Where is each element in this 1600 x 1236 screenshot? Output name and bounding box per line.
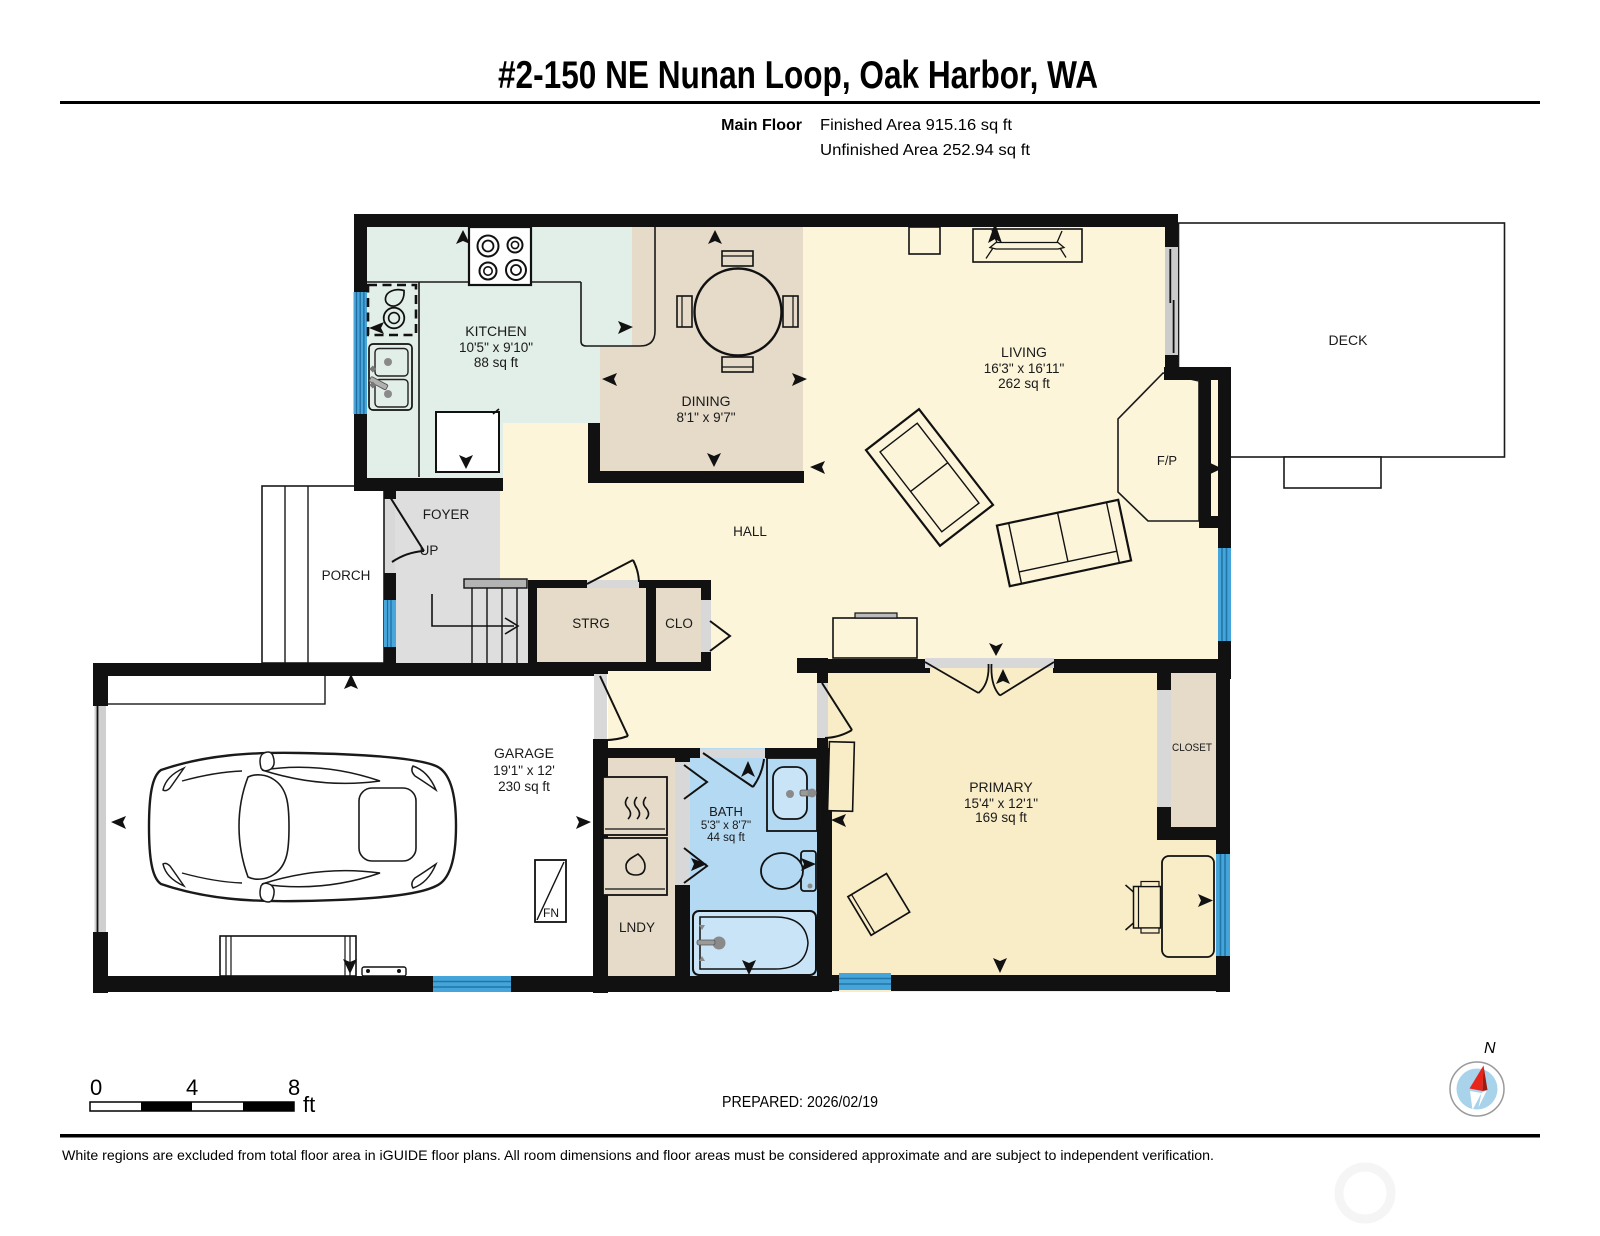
- svg-text:88 sq ft: 88 sq ft: [474, 355, 519, 370]
- svg-text:Finished Area 915.16 sq ft: Finished Area 915.16 sq ft: [820, 117, 1013, 134]
- svg-text:F/P: F/P: [1157, 453, 1177, 468]
- svg-text:262 sq ft: 262 sq ft: [998, 376, 1050, 391]
- svg-text:CLO: CLO: [665, 616, 693, 631]
- svg-text:LNDY: LNDY: [619, 920, 655, 935]
- svg-text:230 sq ft: 230 sq ft: [498, 779, 550, 794]
- svg-text:FN: FN: [543, 906, 559, 920]
- svg-text:44 sq ft: 44 sq ft: [707, 832, 746, 844]
- svg-text:HALL: HALL: [733, 524, 767, 539]
- svg-text:BATH: BATH: [709, 804, 743, 819]
- svg-text:GARAGE: GARAGE: [494, 745, 554, 761]
- svg-text:15'4" x 12'1": 15'4" x 12'1": [964, 796, 1038, 811]
- svg-text:PREPARED: 2026/02/19: PREPARED: 2026/02/19: [722, 1094, 878, 1111]
- svg-text:0: 0: [90, 1075, 102, 1100]
- svg-text:16'3" x 16'11": 16'3" x 16'11": [984, 361, 1065, 376]
- svg-text:KITCHEN: KITCHEN: [465, 323, 526, 339]
- svg-text:169 sq ft: 169 sq ft: [975, 810, 1027, 825]
- svg-text:UP: UP: [420, 543, 439, 558]
- svg-text:LIVING: LIVING: [1001, 344, 1047, 360]
- svg-text:PORCH: PORCH: [322, 568, 371, 583]
- svg-text:8: 8: [288, 1075, 300, 1100]
- svg-text:4: 4: [186, 1075, 198, 1100]
- svg-text:STRG: STRG: [572, 616, 610, 631]
- svg-text:CLOSET: CLOSET: [1172, 742, 1212, 754]
- svg-text:Main Floor: Main Floor: [721, 117, 802, 134]
- svg-text:N: N: [1484, 1040, 1496, 1057]
- svg-text:8'1" x 9'7": 8'1" x 9'7": [676, 410, 735, 425]
- svg-text:5'3" x 8'7": 5'3" x 8'7": [701, 820, 751, 832]
- svg-text:ft: ft: [303, 1092, 315, 1117]
- svg-text:DINING: DINING: [682, 393, 731, 409]
- svg-text:PRIMARY: PRIMARY: [969, 779, 1033, 795]
- svg-text:White regions are excluded fro: White regions are excluded from total fl…: [62, 1147, 1214, 1163]
- svg-text:Unfinished Area 252.94 sq ft: Unfinished Area 252.94 sq ft: [820, 142, 1031, 159]
- svg-text:FOYER: FOYER: [423, 507, 470, 522]
- svg-text:DECK: DECK: [1329, 332, 1369, 348]
- svg-text:10'5" x 9'10": 10'5" x 9'10": [459, 340, 533, 355]
- svg-text:#2-150 NE Nunan Loop, Oak Harb: #2-150 NE Nunan Loop, Oak Harbor, WA: [498, 54, 1098, 97]
- svg-text:19'1" x 12': 19'1" x 12': [493, 763, 555, 778]
